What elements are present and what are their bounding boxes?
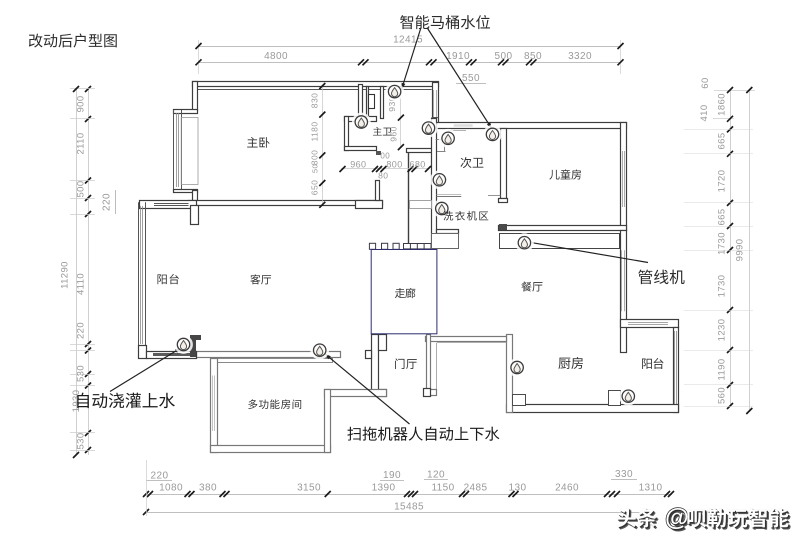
svg-text:1860: 1860: [717, 93, 728, 116]
svg-text:2460: 2460: [555, 483, 579, 494]
svg-text:220: 220: [151, 471, 169, 482]
svg-text:9990: 9990: [735, 239, 746, 262]
svg-text:1730: 1730: [717, 275, 728, 298]
svg-text:11290: 11290: [60, 261, 71, 289]
svg-text:500: 500: [76, 180, 87, 197]
svg-text:680: 680: [409, 160, 425, 170]
svg-text:665: 665: [717, 132, 728, 149]
svg-text:850: 850: [524, 51, 542, 62]
svg-text:2485: 2485: [464, 483, 488, 494]
svg-text:1720: 1720: [717, 170, 728, 193]
svg-text:410: 410: [699, 104, 710, 121]
svg-text:1080: 1080: [159, 483, 183, 494]
svg-text:1310: 1310: [639, 483, 663, 494]
svg-text:500: 500: [495, 51, 513, 62]
svg-text:4800: 4800: [264, 51, 288, 62]
svg-text:1910: 1910: [446, 51, 470, 62]
svg-text:4110: 4110: [76, 273, 87, 295]
svg-text:550: 550: [462, 73, 480, 84]
svg-text:3150: 3150: [297, 483, 321, 494]
svg-text:220: 220: [76, 322, 87, 339]
svg-text:330: 330: [615, 469, 633, 480]
svg-text:1150: 1150: [431, 483, 454, 494]
svg-text:1390: 1390: [372, 483, 396, 494]
svg-text:900: 900: [76, 95, 87, 112]
svg-text:80: 80: [378, 170, 388, 180]
svg-text:960: 960: [389, 126, 399, 141]
svg-text:@: @: [665, 505, 689, 532]
svg-text:960: 960: [350, 160, 366, 170]
svg-text:00: 00: [380, 151, 390, 160]
svg-text:800: 800: [386, 160, 402, 170]
svg-text:800: 800: [310, 150, 320, 165]
svg-text:50: 50: [311, 164, 320, 173]
svg-text:380: 380: [199, 483, 217, 494]
svg-text:530: 530: [76, 365, 87, 382]
svg-text:1180: 1180: [310, 122, 320, 142]
svg-text:2110: 2110: [76, 132, 87, 154]
svg-text:190: 190: [383, 470, 401, 481]
svg-text:60: 60: [700, 77, 711, 88]
svg-text:3320: 3320: [568, 51, 592, 62]
svg-text:830: 830: [310, 93, 320, 108]
svg-text:1930: 1930: [71, 390, 82, 413]
svg-text:650: 650: [310, 180, 320, 195]
svg-text:220: 220: [102, 193, 113, 211]
svg-text:1190: 1190: [717, 358, 728, 380]
svg-text:665: 665: [717, 208, 728, 225]
svg-text:15485: 15485: [394, 502, 424, 513]
svg-text:560: 560: [717, 387, 728, 404]
svg-text:130: 130: [509, 483, 527, 494]
svg-text:1730: 1730: [717, 232, 728, 255]
svg-text:530: 530: [76, 432, 87, 449]
svg-text:1230: 1230: [717, 319, 728, 342]
svg-text:120: 120: [427, 470, 445, 481]
